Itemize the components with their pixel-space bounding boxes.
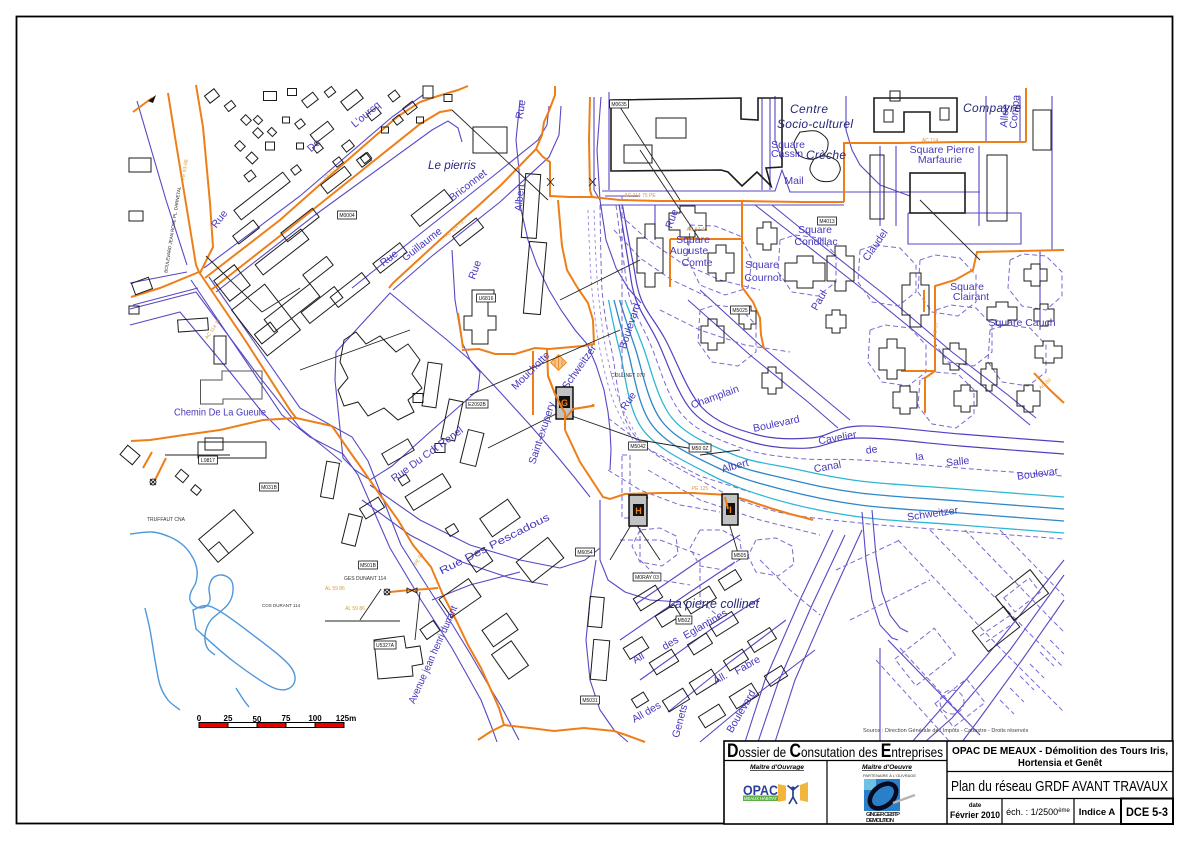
- svg-text:Square: Square: [798, 224, 832, 236]
- svg-text:Plan du réseau GRDF AVANT TRAV: Plan du réseau GRDF AVANT TRAVAUX: [951, 779, 1168, 795]
- svg-text:Dossier de Consutation des Ent: Dossier de Consutation des Entreprises: [727, 741, 943, 762]
- svg-text:Mail: Mail: [784, 175, 803, 187]
- svg-text:Maître d'Oeuvre: Maître d'Oeuvre: [862, 764, 912, 771]
- svg-text:U5327A: U5327A: [376, 643, 395, 649]
- svg-text:M0635: M0635: [611, 102, 627, 108]
- svg-text:Square Cauch: Square Cauch: [988, 317, 1055, 329]
- svg-text:Source : Direction Générale de: Source : Direction Générale des Impôts -…: [863, 728, 1029, 734]
- svg-text:Auguste: Auguste: [670, 245, 709, 257]
- svg-text:Février 2010: Février 2010: [950, 810, 1000, 821]
- svg-text:COLLINET 070: COLLINET 070: [611, 373, 645, 379]
- svg-text:DEMOLITION: DEMOLITION: [866, 818, 894, 824]
- svg-text:100: 100: [308, 714, 322, 723]
- svg-text:U6816: U6816: [479, 296, 494, 302]
- svg-text:M0004: M0004: [339, 213, 355, 219]
- svg-text:E2092B: E2092B: [468, 402, 486, 408]
- svg-text:M501B: M501B: [360, 563, 377, 569]
- svg-text:H: H: [635, 506, 642, 516]
- svg-text:75: 75: [282, 714, 291, 723]
- svg-text:AL 59 86: AL 59 86: [325, 586, 345, 592]
- svg-text:M505: M505: [734, 553, 747, 559]
- svg-text:GES DUNANT 114: GES DUNANT 114: [344, 576, 386, 582]
- svg-text:Compayre: Compayre: [963, 101, 1021, 115]
- svg-text:Le pierris: Le pierris: [428, 158, 476, 172]
- svg-text:AC 114: AC 114: [922, 138, 939, 144]
- svg-text:Cournot: Cournot: [744, 272, 781, 284]
- svg-text:M5042: M5042: [630, 444, 646, 450]
- svg-text:M5025: M5025: [732, 308, 748, 314]
- svg-text:M50Z: M50Z: [678, 618, 691, 624]
- svg-text:Square: Square: [745, 259, 779, 271]
- svg-text:L9817: L9817: [201, 458, 215, 464]
- svg-text:TRUFFAUT CNA: TRUFFAUT CNA: [147, 517, 186, 523]
- svg-text:PARTENAIRE À L'OUVRAGE: PARTENAIRE À L'OUVRAGE: [863, 773, 916, 778]
- svg-text:0: 0: [197, 714, 202, 723]
- svg-text:M5031: M5031: [582, 698, 598, 704]
- svg-text:MEAUX HABITAT: MEAUX HABITAT: [744, 796, 777, 801]
- svg-text:Indice A: Indice A: [1079, 807, 1116, 818]
- svg-text:OPAC DE MEAUX - Démolition des: OPAC DE MEAUX - Démolition des Tours Iri…: [952, 745, 1168, 757]
- svg-text:PE 63: PE 63: [932, 323, 939, 337]
- svg-text:Marfaurie: Marfaurie: [918, 154, 963, 166]
- svg-text:Salle: Salle: [945, 455, 970, 469]
- svg-text:M6054: M6054: [577, 550, 593, 556]
- svg-text:Crèche: Crèche: [806, 148, 846, 162]
- svg-text:Comte: Comte: [682, 257, 713, 269]
- svg-text:25: 25: [224, 714, 233, 723]
- svg-text:AC 114 75 PE: AC 114 75 PE: [624, 193, 656, 199]
- svg-text:I: I: [729, 505, 732, 515]
- svg-text:M0RAY 03: M0RAY 03: [635, 575, 659, 581]
- svg-text:Maître d'Ouvrage: Maître d'Ouvrage: [750, 764, 804, 771]
- svg-text:Socio-culturel: Socio-culturel: [777, 117, 853, 131]
- svg-text:PE 125: PE 125: [692, 486, 709, 492]
- svg-text:Condillac: Condillac: [794, 236, 837, 248]
- svg-text:La pierre collinet: La pierre collinet: [668, 596, 760, 611]
- svg-text:COS DURANT 114: COS DURANT 114: [262, 603, 301, 608]
- svg-text:Centre: Centre: [790, 102, 828, 116]
- svg-text:de: de: [865, 443, 878, 457]
- svg-text:AC 61 45: AC 61 45: [687, 227, 708, 233]
- svg-text:Clairant: Clairant: [953, 291, 989, 303]
- svg-text:Cassin: Cassin: [771, 148, 803, 160]
- svg-text:M50 0Z: M50 0Z: [692, 446, 709, 452]
- svg-text:Chemin De La Gueule: Chemin De La Gueule: [174, 407, 266, 419]
- svg-text:Hortensia et Genêt: Hortensia et Genêt: [1018, 757, 1102, 769]
- svg-text:date: date: [969, 803, 982, 809]
- svg-text:M031B: M031B: [261, 485, 278, 491]
- svg-text:DCE 5-3: DCE 5-3: [1126, 805, 1168, 819]
- svg-text:AL 59 86: AL 59 86: [345, 606, 365, 612]
- svg-text:125m: 125m: [336, 714, 356, 723]
